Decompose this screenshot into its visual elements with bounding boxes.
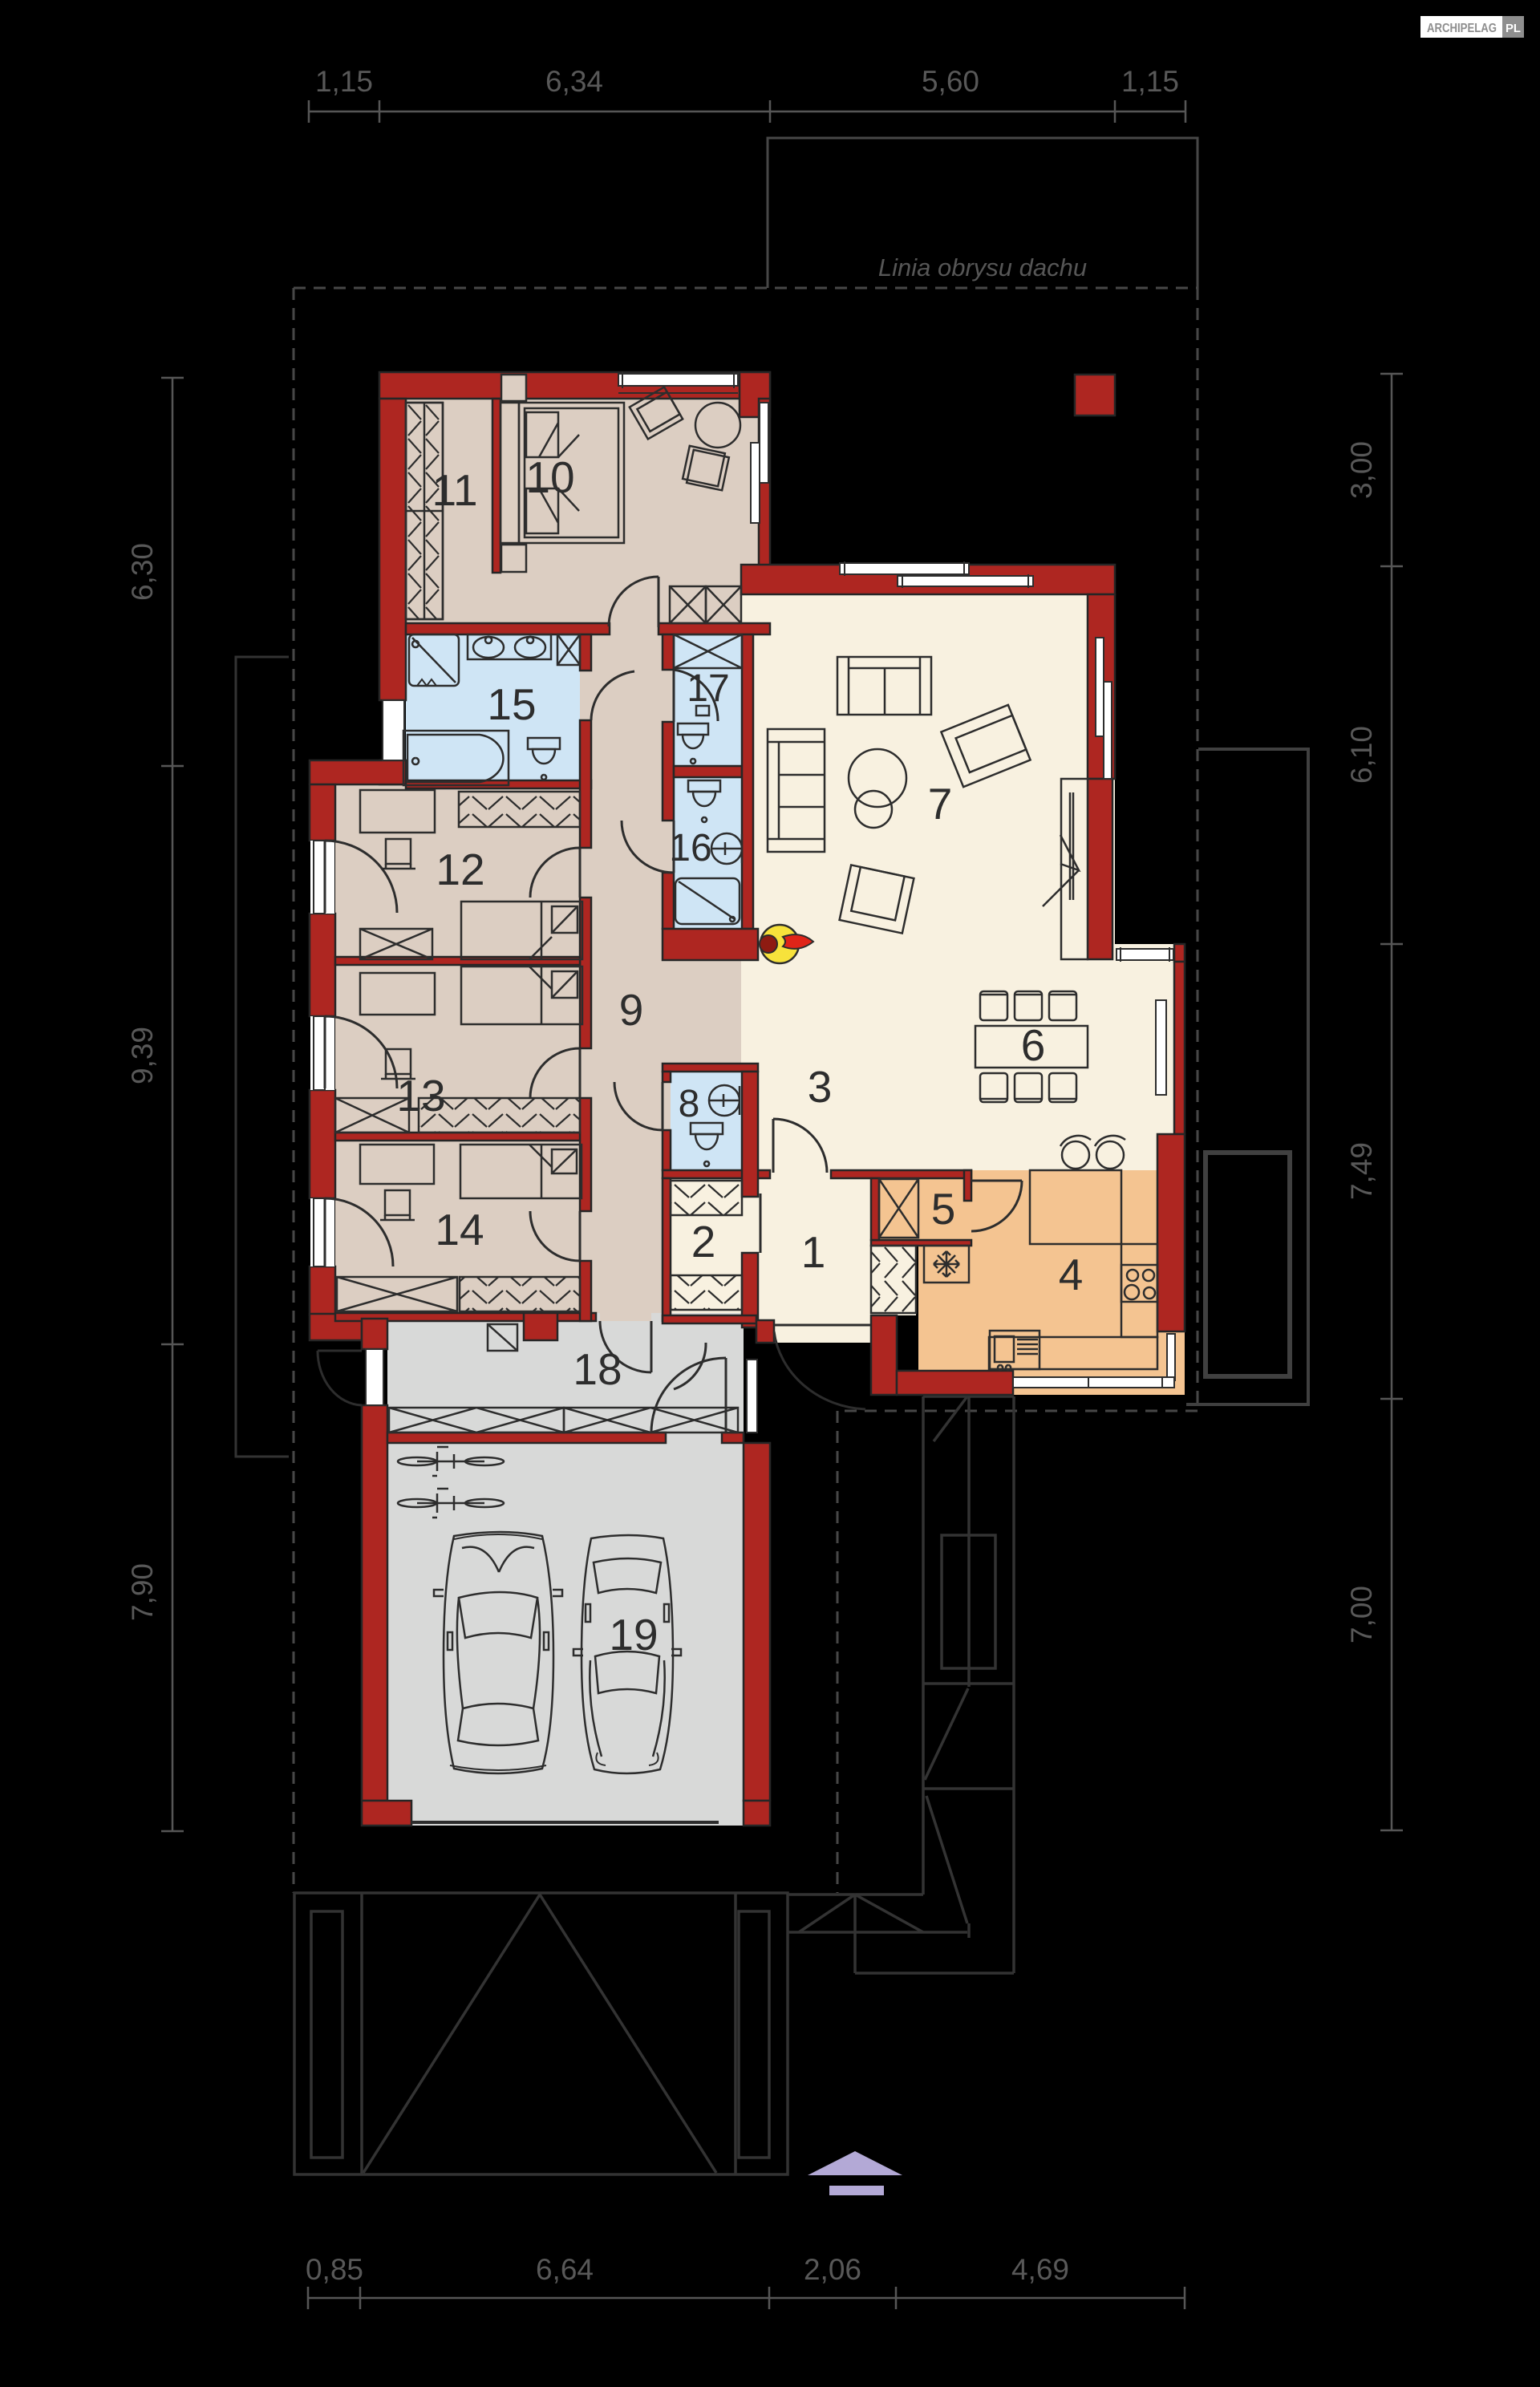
svg-text:5: 5 <box>931 1184 956 1234</box>
svg-text:1,15: 1,15 <box>1121 65 1179 98</box>
svg-text:6,30: 6,30 <box>126 543 159 601</box>
svg-text:16: 16 <box>669 827 711 869</box>
svg-text:17: 17 <box>687 667 729 710</box>
svg-text:6,34: 6,34 <box>545 65 603 98</box>
svg-text:9: 9 <box>619 985 644 1035</box>
svg-text:13: 13 <box>396 1071 445 1121</box>
svg-text:1,15: 1,15 <box>315 65 373 98</box>
svg-text:18: 18 <box>573 1344 622 1394</box>
svg-text:6: 6 <box>1021 1020 1046 1070</box>
svg-text:ARCHIPELAG: ARCHIPELAG <box>1427 22 1497 35</box>
svg-text:7,00: 7,00 <box>1345 1586 1378 1643</box>
svg-text:4: 4 <box>1059 1250 1084 1299</box>
svg-text:3,00: 3,00 <box>1345 441 1378 499</box>
svg-text:15: 15 <box>487 679 536 729</box>
svg-text:7,49: 7,49 <box>1345 1142 1378 1200</box>
svg-text:3: 3 <box>808 1062 833 1112</box>
svg-text:11: 11 <box>432 465 477 515</box>
svg-text:PL: PL <box>1506 22 1521 35</box>
svg-text:19: 19 <box>609 1610 658 1660</box>
svg-text:9,39: 9,39 <box>126 1027 159 1084</box>
svg-text:0,85: 0,85 <box>306 2253 363 2286</box>
svg-text:7: 7 <box>928 779 953 829</box>
svg-text:2: 2 <box>691 1217 716 1266</box>
svg-text:14: 14 <box>435 1205 484 1254</box>
svg-text:2,06: 2,06 <box>804 2253 861 2286</box>
svg-text:7,90: 7,90 <box>126 1563 159 1621</box>
svg-text:1: 1 <box>801 1227 826 1277</box>
svg-text:10: 10 <box>525 452 574 502</box>
svg-text:Linia obrysu dachu: Linia obrysu dachu <box>878 253 1087 282</box>
svg-text:5,60: 5,60 <box>922 65 979 98</box>
svg-text:6,10: 6,10 <box>1345 726 1378 784</box>
svg-text:4,69: 4,69 <box>1011 2253 1069 2286</box>
svg-text:12: 12 <box>436 845 484 894</box>
svg-text:6,64: 6,64 <box>536 2253 594 2286</box>
svg-text:8: 8 <box>679 1083 700 1125</box>
